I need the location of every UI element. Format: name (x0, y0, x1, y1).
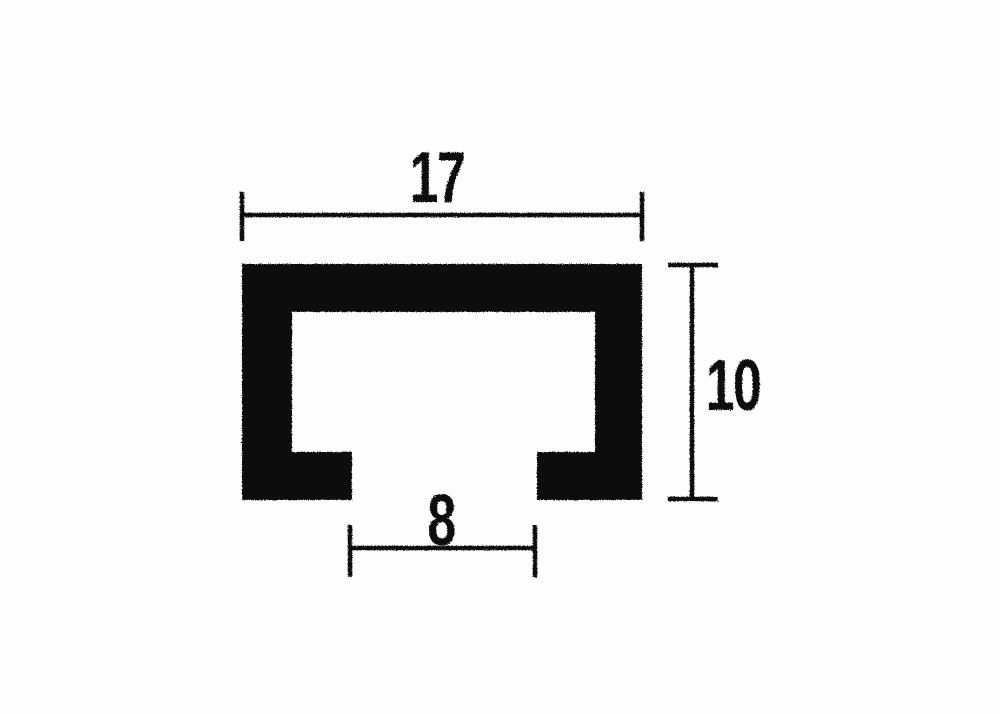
dimension-height: 10 (668, 265, 760, 499)
technical-drawing: 17 10 8 (0, 0, 1000, 714)
dimension-width: 17 (242, 138, 642, 241)
dimension-width-label: 17 (410, 138, 465, 218)
dimension-opening-label: 8 (427, 481, 454, 561)
drawing-group: 17 10 8 (242, 138, 760, 577)
drawing-canvas: 17 10 8 (0, 0, 1000, 714)
profile-cross-section (242, 264, 642, 500)
dimension-height-label: 10 (706, 346, 761, 426)
dimension-opening: 8 (350, 481, 535, 577)
